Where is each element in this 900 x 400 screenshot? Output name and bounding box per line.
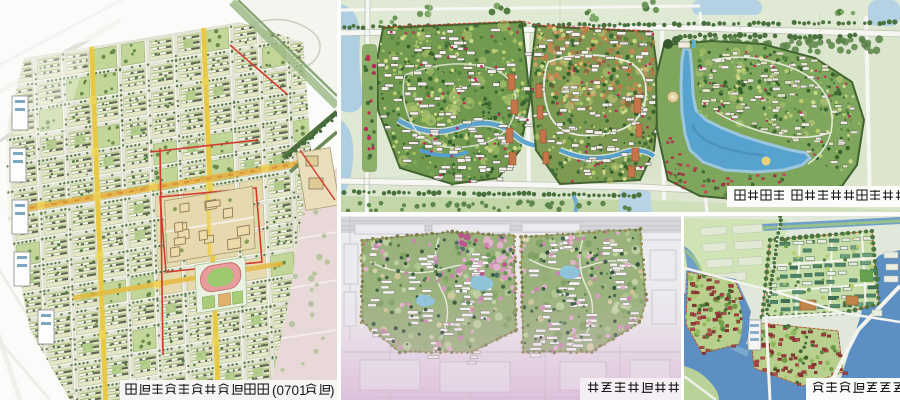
svg-text:): ) [330,383,335,398]
svg-text:(0701: (0701 [272,383,307,398]
